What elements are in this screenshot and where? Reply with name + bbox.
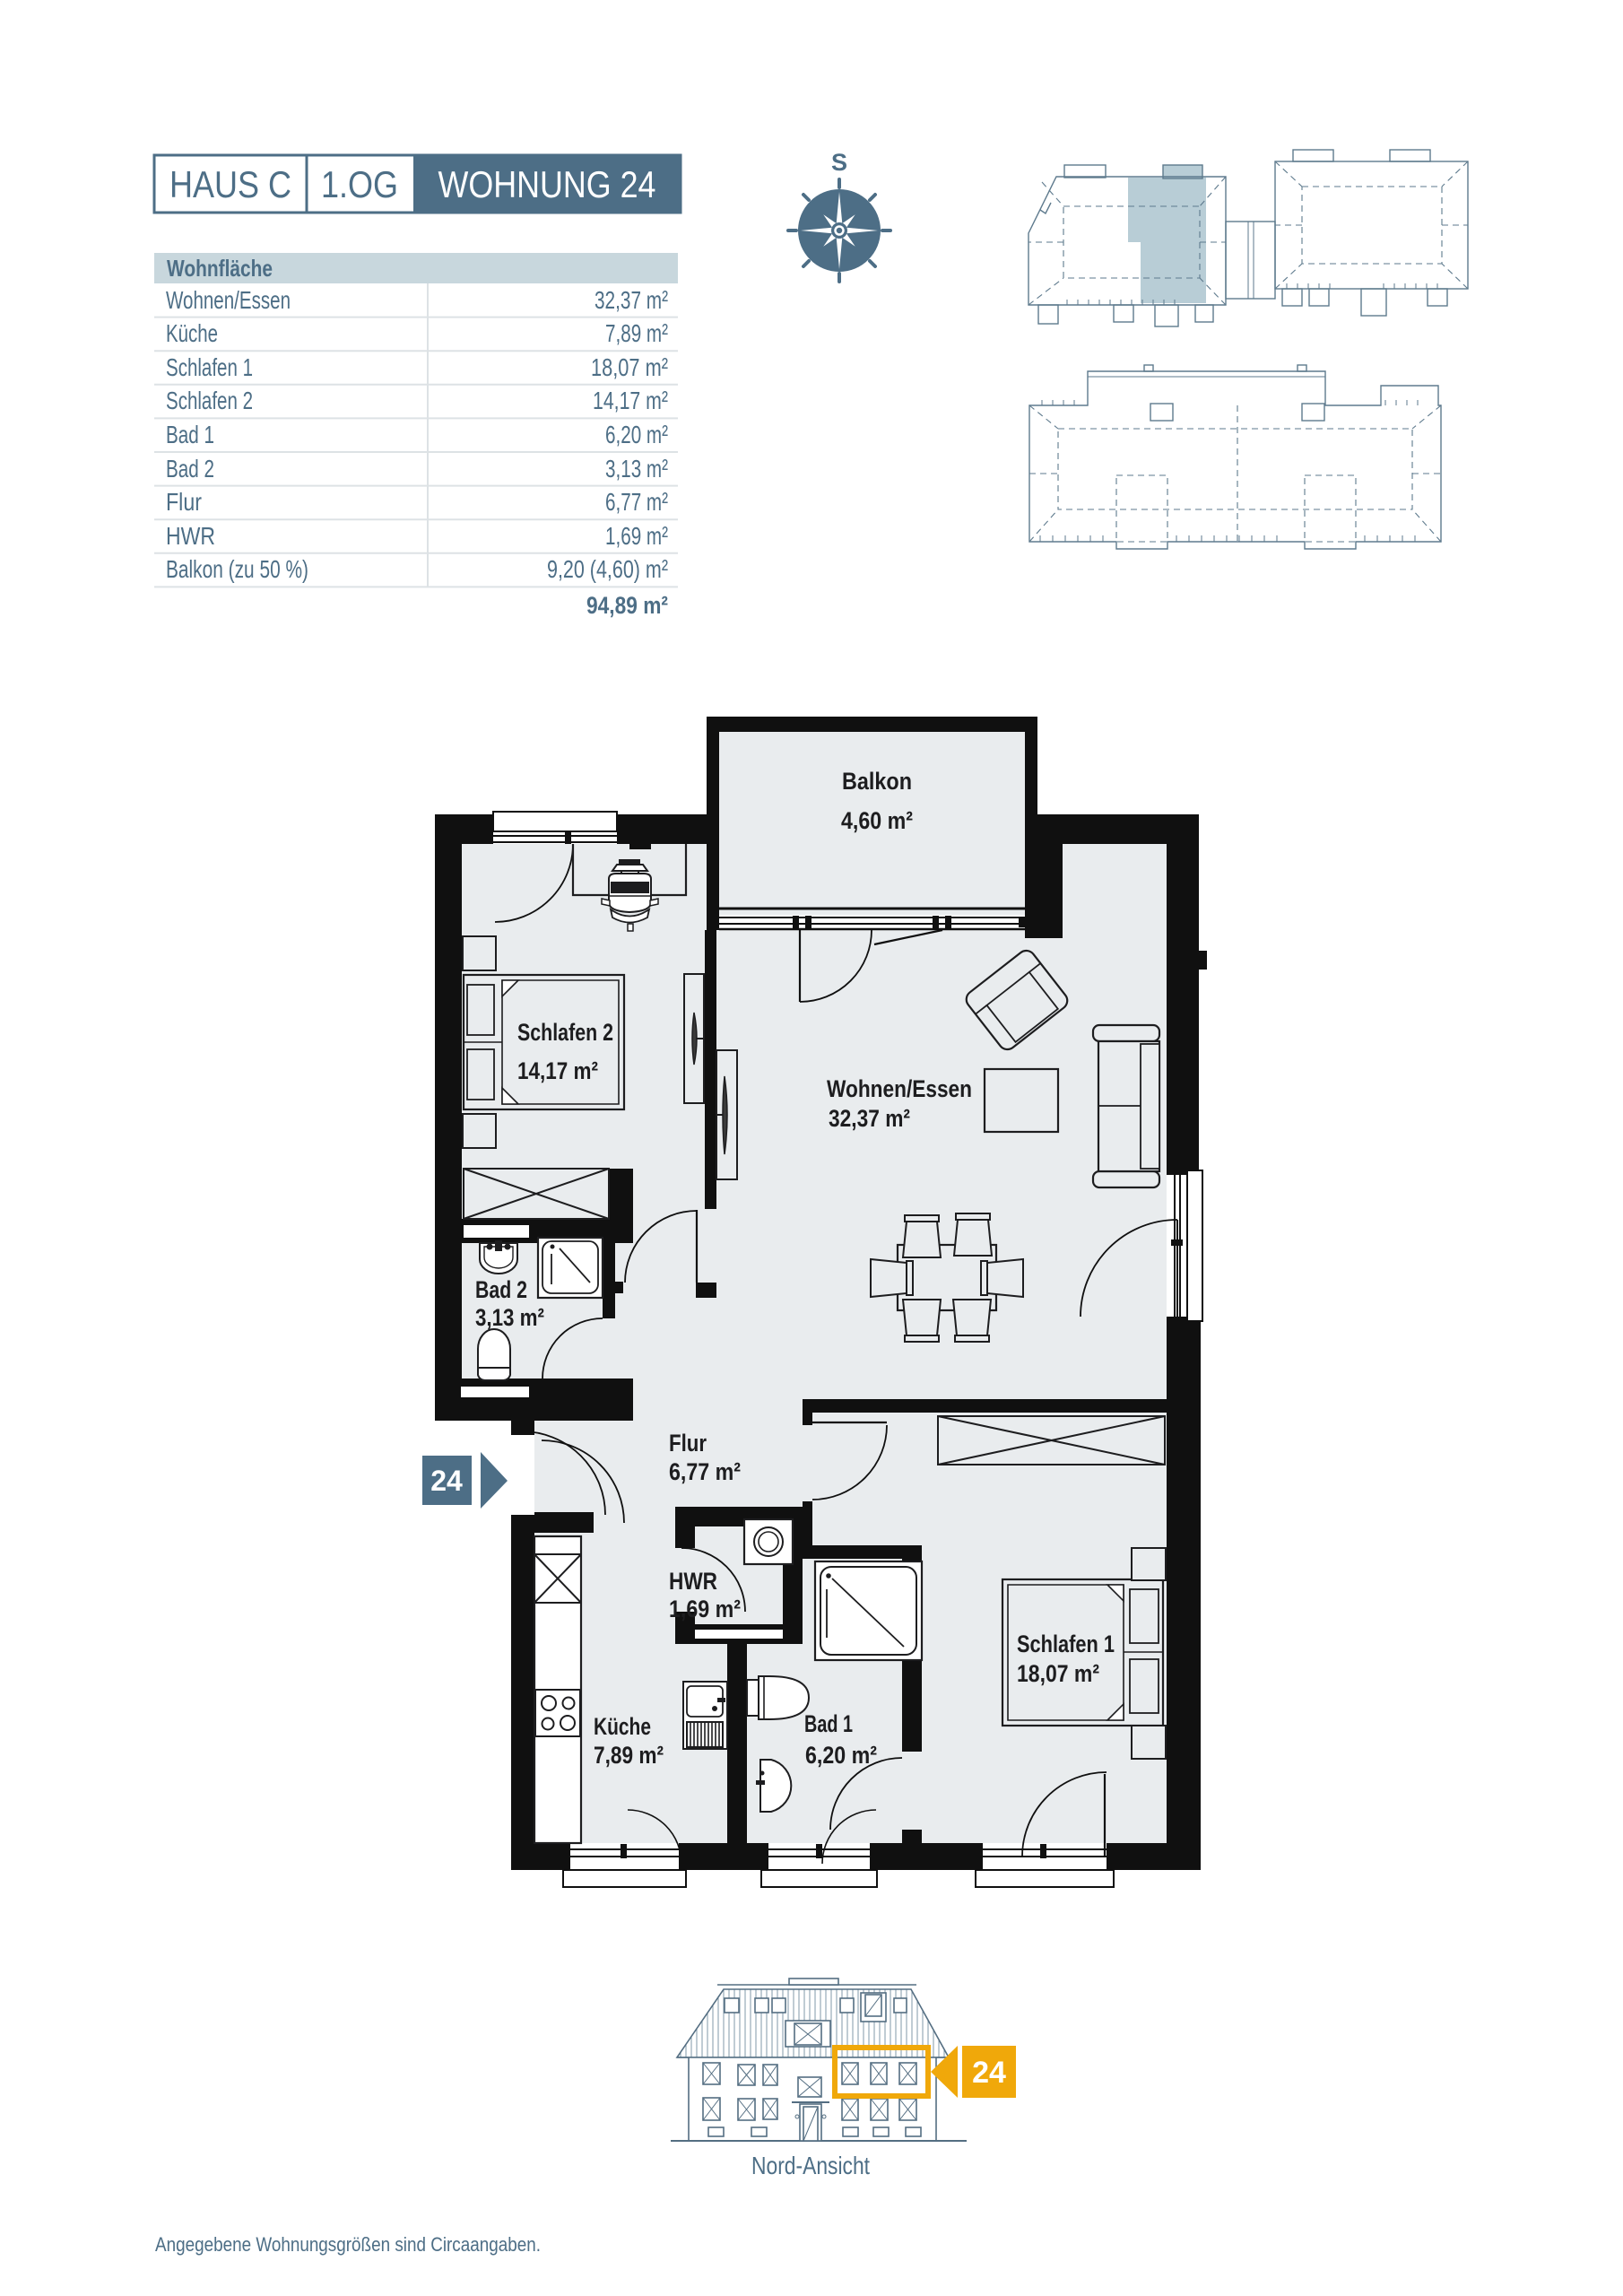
svg-text:Flur: Flur	[166, 488, 202, 516]
svg-text:1,69 m²: 1,69 m²	[669, 1596, 741, 1622]
svg-text:Schlafen 2: Schlafen 2	[517, 1019, 613, 1046]
svg-text:6,77 m²: 6,77 m²	[669, 1458, 741, 1485]
svg-text:Schlafen 1: Schlafen 1	[166, 353, 253, 381]
svg-text:7,89 m²: 7,89 m²	[594, 1742, 664, 1769]
svg-text:Bad 2: Bad 2	[475, 1276, 527, 1303]
svg-text:Bad 2: Bad 2	[166, 455, 214, 483]
svg-text:Wohnfläche: Wohnfläche	[167, 255, 273, 282]
svg-text:Küche: Küche	[166, 319, 218, 347]
svg-text:94,89 m²: 94,89 m²	[586, 592, 668, 619]
svg-text:24: 24	[972, 2056, 1006, 2090]
svg-text:Schlafen 1: Schlafen 1	[1017, 1631, 1115, 1657]
svg-text:24: 24	[430, 1465, 463, 1497]
svg-text:14,17 m²: 14,17 m²	[517, 1057, 598, 1084]
svg-text:9,20 (4,60) m²: 9,20 (4,60) m²	[547, 555, 668, 583]
svg-text:18,07 m²: 18,07 m²	[1017, 1660, 1099, 1687]
svg-text:6,77 m²: 6,77 m²	[605, 488, 668, 516]
svg-text:HWR: HWR	[166, 522, 215, 550]
svg-text:Küche: Küche	[594, 1713, 651, 1740]
svg-text:1.OG: 1.OG	[321, 163, 398, 205]
svg-text:6,20 m²: 6,20 m²	[605, 421, 668, 448]
svg-text:6,20 m²: 6,20 m²	[805, 1742, 877, 1769]
svg-text:HAUS C: HAUS C	[169, 163, 291, 205]
svg-text:Wohnen/Essen: Wohnen/Essen	[827, 1075, 972, 1102]
svg-text:3,13 m²: 3,13 m²	[605, 455, 668, 483]
svg-text:Flur: Flur	[669, 1430, 707, 1457]
svg-text:Angegebene Wohnungsgrößen sind: Angegebene Wohnungsgrößen sind Circaanga…	[155, 2233, 541, 2256]
svg-text:7,89 m²: 7,89 m²	[605, 319, 668, 347]
svg-text:Balkon (zu 50 %): Balkon (zu 50 %)	[166, 555, 308, 583]
svg-text:18,07 m²: 18,07 m²	[591, 353, 668, 381]
svg-text:Bad 1: Bad 1	[804, 1710, 853, 1737]
svg-text:3,13 m²: 3,13 m²	[475, 1304, 544, 1331]
svg-text:Nord-Ansicht: Nord-Ansicht	[751, 2152, 870, 2179]
svg-text:S: S	[831, 149, 847, 176]
svg-text:Bad 1: Bad 1	[166, 421, 214, 448]
svg-text:1,69 m²: 1,69 m²	[605, 522, 668, 550]
svg-text:Balkon: Balkon	[842, 768, 912, 795]
svg-text:4,60 m²: 4,60 m²	[841, 807, 913, 834]
svg-text:14,17 m²: 14,17 m²	[593, 387, 668, 414]
svg-text:Schlafen 2: Schlafen 2	[166, 387, 253, 414]
svg-text:32,37 m²: 32,37 m²	[595, 286, 668, 314]
svg-text:Wohnen/Essen: Wohnen/Essen	[166, 286, 291, 314]
svg-text:32,37 m²: 32,37 m²	[829, 1105, 910, 1132]
svg-text:HWR: HWR	[669, 1568, 717, 1595]
svg-text:WOHNUNG 24: WOHNUNG 24	[438, 163, 656, 205]
